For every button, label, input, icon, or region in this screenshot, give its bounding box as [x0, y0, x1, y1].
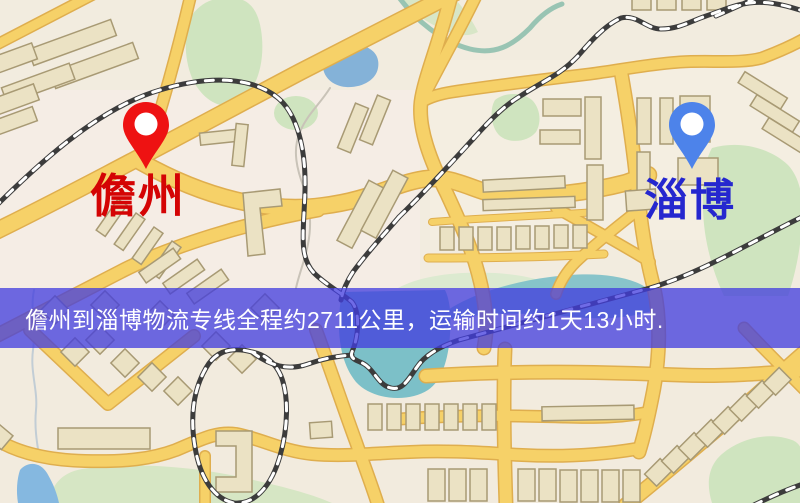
destination-pin-icon[interactable] — [663, 99, 721, 173]
map-canvas[interactable]: 儋州 淄博 儋州到淄博物流专线全程约2711公里，运输时间约1天13小时. — [0, 0, 800, 503]
route-info-text: 儋州到淄博物流专线全程约2711公里，运输时间约1天13小时. — [0, 301, 664, 335]
destination-label: 淄博 — [644, 179, 736, 223]
origin-label: 儋州 — [90, 173, 186, 219]
map-graphic — [0, 0, 800, 503]
route-info-banner: 儋州到淄博物流专线全程约2711公里，运输时间约1天13小时. — [0, 288, 800, 348]
origin-pin-icon[interactable] — [117, 99, 175, 173]
